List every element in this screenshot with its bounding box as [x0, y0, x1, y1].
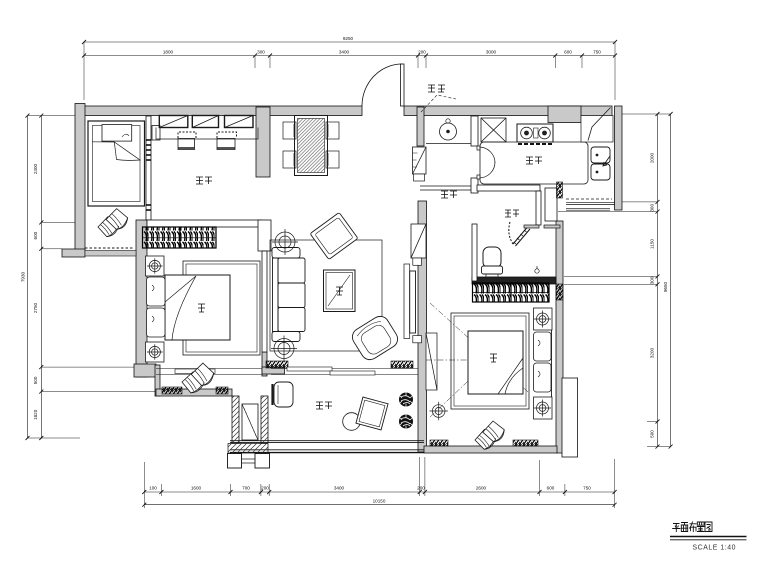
- svg-text:7930: 7930: [21, 271, 26, 282]
- svg-text:750: 750: [593, 50, 601, 55]
- svg-text:2600: 2600: [476, 486, 487, 491]
- svg-text:200: 200: [418, 50, 426, 55]
- svg-text:10150: 10150: [373, 499, 386, 504]
- svg-text:3400: 3400: [334, 486, 345, 491]
- svg-text:300: 300: [650, 276, 655, 284]
- svg-text:700: 700: [242, 486, 250, 491]
- svg-text:9650: 9650: [663, 281, 668, 292]
- svg-text:1150: 1150: [650, 239, 655, 249]
- svg-text:600: 600: [33, 231, 38, 239]
- svg-text:SCALE 1:40: SCALE 1:40: [693, 545, 736, 552]
- svg-text:600: 600: [564, 50, 572, 55]
- svg-text:3200: 3200: [650, 347, 655, 358]
- svg-text:2000: 2000: [650, 152, 655, 163]
- svg-text:300: 300: [650, 204, 655, 212]
- svg-text:3400: 3400: [339, 50, 350, 55]
- svg-text:500: 500: [33, 376, 38, 384]
- svg-text:1800: 1800: [163, 50, 174, 55]
- svg-text:200: 200: [417, 486, 425, 491]
- svg-text:1600: 1600: [191, 486, 202, 491]
- svg-text:750: 750: [583, 486, 591, 491]
- svg-text:300: 300: [257, 50, 265, 55]
- svg-text:500: 500: [650, 430, 655, 438]
- svg-text:600: 600: [547, 486, 555, 491]
- svg-text:9250: 9250: [343, 36, 354, 41]
- svg-text:200: 200: [261, 486, 269, 491]
- svg-text:3000: 3000: [486, 50, 497, 55]
- svg-text:2400: 2400: [33, 163, 38, 174]
- svg-text:100: 100: [149, 486, 157, 491]
- svg-text:2750: 2750: [33, 302, 38, 313]
- svg-text:1820: 1820: [33, 409, 38, 420]
